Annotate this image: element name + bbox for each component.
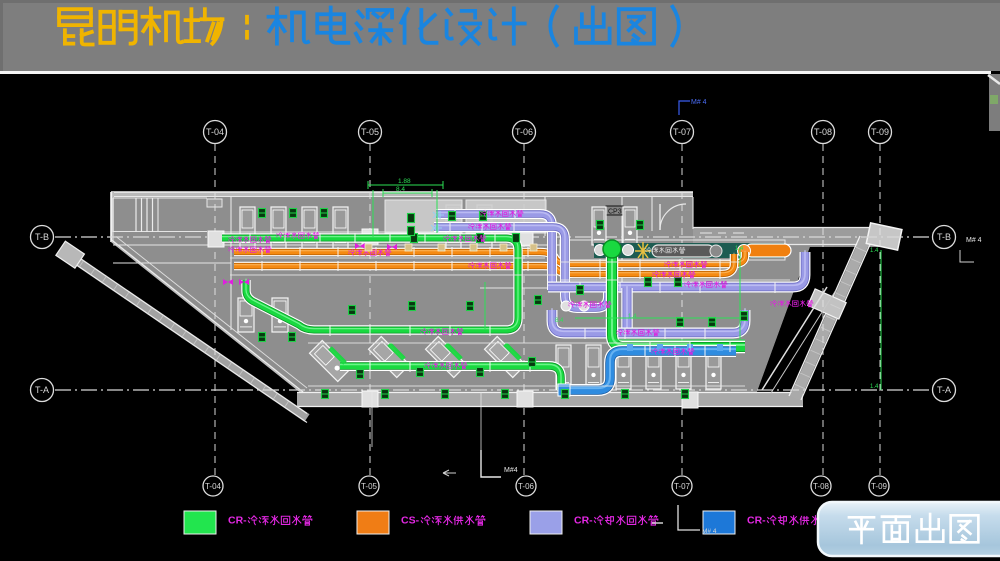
svg-text:CP3: CP3	[608, 209, 622, 216]
svg-text:T-04: T-04	[206, 127, 224, 137]
svg-text:T-B: T-B	[35, 232, 49, 242]
svg-text:T-09: T-09	[871, 127, 889, 137]
svg-text:1.4: 1.4	[735, 246, 744, 252]
svg-text:T-06: T-06	[518, 482, 535, 491]
svg-text:T-05: T-05	[361, 482, 378, 491]
svg-text:T-08: T-08	[814, 127, 832, 137]
svg-text:M# 4: M# 4	[691, 99, 707, 106]
svg-text:T-A: T-A	[937, 385, 951, 395]
svg-text:8.4: 8.4	[555, 318, 564, 324]
svg-text:1.4: 1.4	[870, 248, 879, 254]
svg-text:T-04: T-04	[205, 482, 222, 491]
svg-text:8.4: 8.4	[396, 186, 405, 193]
svg-text:T-A: T-A	[35, 385, 49, 395]
svg-text:T-09: T-09	[871, 482, 888, 491]
svg-text:1.4: 1.4	[628, 314, 637, 320]
svg-text:CR-: CR-	[228, 515, 247, 527]
svg-text:1.88: 1.88	[398, 178, 411, 185]
svg-text:M# 4: M# 4	[966, 237, 982, 244]
svg-text:CR-: CR-	[747, 515, 766, 527]
svg-text:T-07: T-07	[674, 482, 691, 491]
svg-text:T-05: T-05	[361, 127, 379, 137]
svg-text:T-06: T-06	[515, 127, 533, 137]
svg-text:1.4: 1.4	[870, 384, 879, 390]
svg-text:CR-: CR-	[574, 515, 593, 527]
svg-text:T-08: T-08	[813, 482, 830, 491]
svg-text:M# 4: M# 4	[702, 528, 717, 535]
svg-text:T-B: T-B	[937, 232, 951, 242]
svg-text:CS-: CS-	[401, 515, 420, 527]
svg-text:T-07: T-07	[673, 127, 691, 137]
svg-text:M#4: M#4	[504, 467, 518, 474]
